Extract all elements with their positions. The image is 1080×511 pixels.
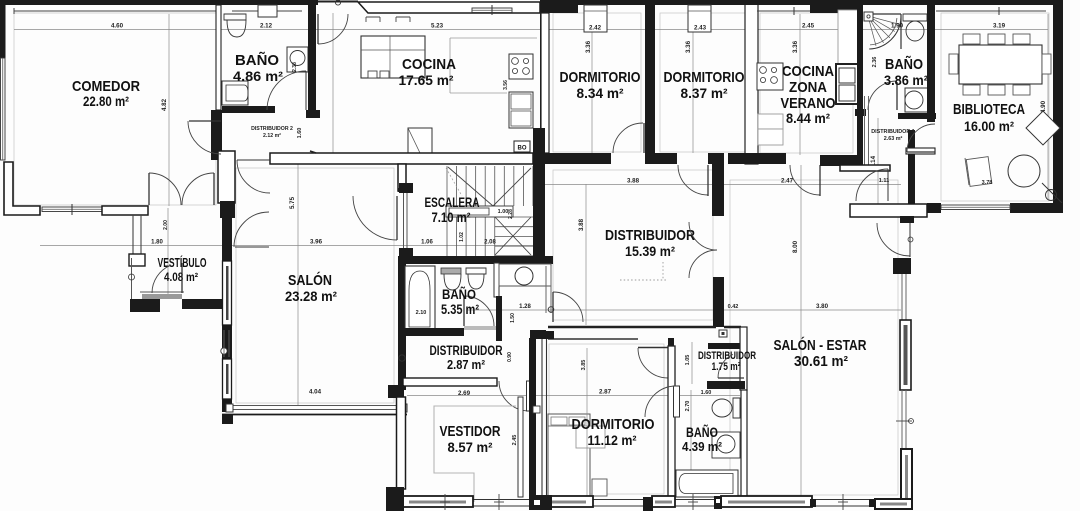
svg-text:2.36: 2.36 [872, 57, 878, 68]
svg-text:3.36: 3.36 [792, 40, 799, 53]
svg-text:3.36: 3.36 [685, 40, 692, 53]
svg-text:3.88: 3.88 [578, 218, 585, 231]
svg-text:1.11: 1.11 [879, 178, 889, 184]
svg-text:DORMITORIO: DORMITORIO [560, 69, 641, 86]
svg-text:8.34 m²: 8.34 m² [577, 85, 624, 101]
svg-text:DISTRIBUIDOR 1: DISTRIBUIDOR 1 [871, 129, 914, 135]
svg-text:11.12 m²: 11.12 m² [588, 432, 637, 448]
svg-text:DORMITORIO: DORMITORIO [664, 69, 745, 86]
svg-text:4.86 m²: 4.86 m² [233, 68, 283, 84]
svg-text:ZONA: ZONA [789, 79, 827, 96]
svg-text:3.19: 3.19 [993, 23, 1006, 30]
svg-text:8.37 m²: 8.37 m² [681, 85, 728, 101]
svg-text:COCINA: COCINA [402, 56, 456, 73]
svg-text:2.87: 2.87 [599, 389, 612, 396]
svg-text:2.08: 2.08 [484, 240, 496, 246]
svg-text:5.23: 5.23 [431, 23, 444, 30]
svg-text:1.90: 1.90 [891, 23, 904, 30]
svg-text:DORMITORIO: DORMITORIO [572, 416, 655, 433]
svg-text:BAÑO: BAÑO [235, 51, 279, 69]
svg-text:BAÑO: BAÑO [442, 285, 476, 302]
svg-text:COCINA: COCINA [782, 63, 834, 80]
svg-text:3.86 m²: 3.86 m² [884, 72, 928, 88]
svg-text:3.88: 3.88 [627, 178, 640, 185]
svg-text:1.50: 1.50 [510, 313, 516, 323]
svg-text:DISTRIBUIDOR: DISTRIBUIDOR [430, 343, 503, 358]
svg-text:2.00: 2.00 [163, 220, 169, 230]
svg-text:3.36: 3.36 [585, 40, 592, 53]
svg-text:2.45: 2.45 [512, 435, 518, 446]
svg-text:17.65 m²: 17.65 m² [399, 72, 454, 88]
svg-text:30.61 m²: 30.61 m² [794, 354, 848, 370]
svg-text:2.45: 2.45 [802, 23, 815, 30]
svg-text:8.57 m²: 8.57 m² [448, 439, 493, 455]
svg-text:2.42: 2.42 [589, 25, 602, 32]
svg-text:1.28: 1.28 [519, 304, 531, 310]
svg-text:4.39 m²: 4.39 m² [682, 439, 723, 454]
svg-text:2.69: 2.69 [458, 390, 471, 397]
svg-text:1.00: 1.00 [498, 209, 509, 215]
svg-text:8.44 m²: 8.44 m² [786, 110, 830, 126]
svg-text:3.80: 3.80 [816, 303, 829, 310]
svg-text:0.90: 0.90 [507, 352, 513, 362]
svg-text:3.85: 3.85 [581, 360, 587, 371]
svg-text:1.75 m²: 1.75 m² [712, 361, 741, 373]
svg-text:15.39 m²: 15.39 m² [625, 243, 675, 259]
svg-text:4.82: 4.82 [161, 98, 168, 111]
svg-text:SALÓN - ESTAR: SALÓN - ESTAR [774, 336, 867, 354]
svg-text:3.96: 3.96 [310, 239, 323, 246]
svg-text:4.08 m²: 4.08 m² [164, 270, 198, 284]
svg-text:1.06: 1.06 [421, 240, 433, 246]
svg-text:2.63 m²: 2.63 m² [884, 136, 903, 142]
svg-text:5.35 m²: 5.35 m² [441, 302, 479, 317]
svg-text:SALÓN: SALÓN [288, 271, 332, 289]
svg-text:4.60: 4.60 [111, 23, 124, 30]
svg-text:2.28: 2.28 [508, 209, 514, 219]
svg-text:5.75: 5.75 [289, 196, 296, 209]
svg-text:2.47: 2.47 [781, 178, 794, 185]
svg-text:BO: BO [518, 146, 527, 152]
svg-text:2.38: 2.38 [292, 62, 298, 72]
svg-text:1.05: 1.05 [685, 355, 691, 366]
svg-text:ESCALERA: ESCALERA [425, 194, 480, 210]
svg-text:2.12 m²: 2.12 m² [263, 133, 281, 139]
svg-text:2.12: 2.12 [260, 23, 273, 30]
svg-text:BAÑO: BAÑO [686, 425, 718, 440]
svg-text:VESTIDOR: VESTIDOR [440, 423, 501, 440]
svg-text:1.60: 1.60 [701, 390, 712, 396]
svg-text:DISTRIBUIDOR 2: DISTRIBUIDOR 2 [251, 126, 293, 132]
svg-text:1.80: 1.80 [151, 240, 163, 246]
svg-text:4.04: 4.04 [309, 389, 322, 396]
svg-text:3.78: 3.78 [982, 180, 993, 186]
svg-text:DISTRIBUIDOR: DISTRIBUIDOR [605, 227, 695, 244]
svg-text:3.56: 3.56 [503, 80, 509, 90]
svg-text:7.10 m²: 7.10 m² [432, 210, 471, 225]
svg-text:16.00 m²: 16.00 m² [964, 118, 1014, 134]
svg-text:8.00: 8.00 [792, 240, 799, 253]
svg-text:1.02: 1.02 [459, 232, 465, 242]
svg-text:BAÑO: BAÑO [885, 55, 923, 73]
svg-text:2.87 m²: 2.87 m² [447, 357, 486, 372]
svg-text:1.60: 1.60 [297, 128, 303, 139]
svg-text:22.80 m²: 22.80 m² [83, 93, 129, 109]
svg-text:23.28 m²: 23.28 m² [285, 288, 337, 304]
svg-text:2.10: 2.10 [416, 310, 427, 316]
svg-text:2.43: 2.43 [694, 25, 707, 32]
svg-text:2.70: 2.70 [685, 401, 691, 412]
svg-text:BIBLIOTECA: BIBLIOTECA [953, 101, 1025, 118]
svg-text:0.42: 0.42 [728, 304, 739, 310]
